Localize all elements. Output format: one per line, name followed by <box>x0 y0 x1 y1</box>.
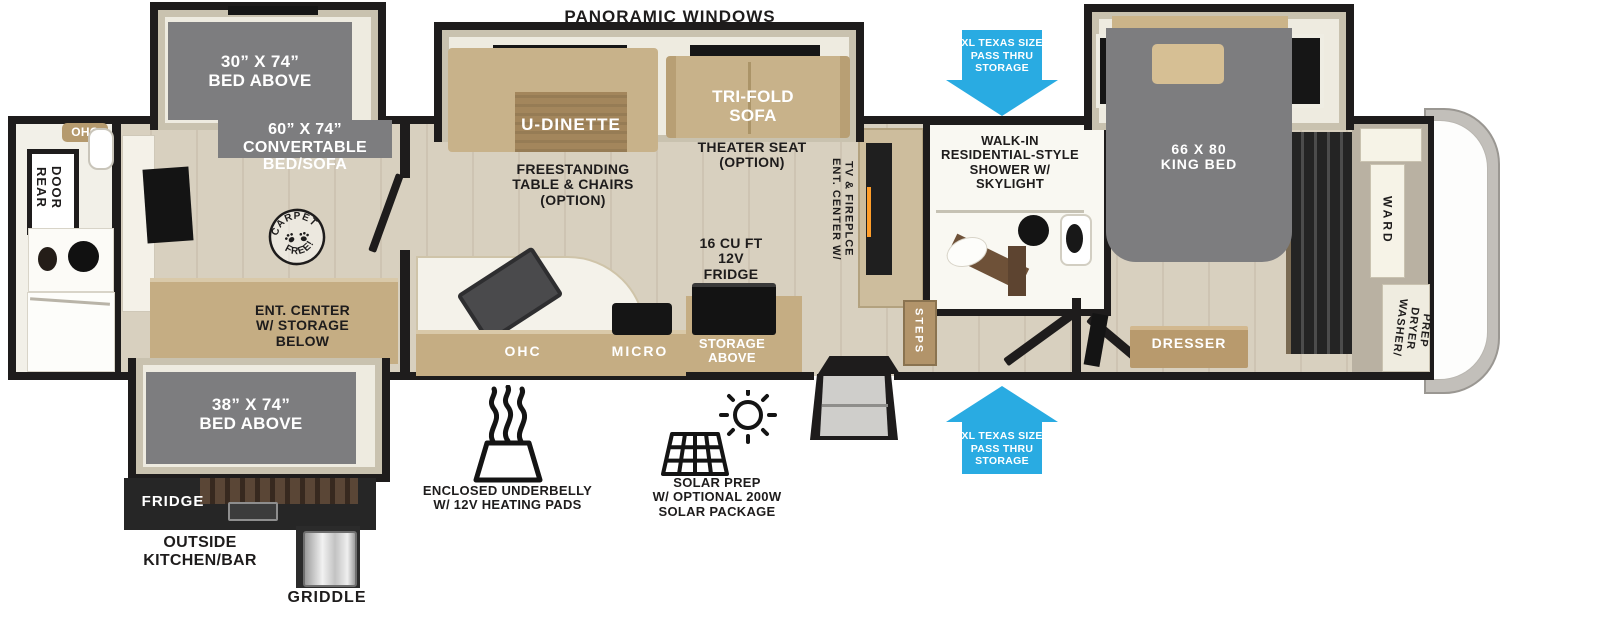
bedroom-closet <box>1286 132 1358 354</box>
solar-prep-icon <box>655 390 781 478</box>
fridge-12v <box>692 283 776 335</box>
entry-threshold <box>818 356 900 374</box>
arrow-up-head <box>946 386 1058 422</box>
shower-label: WALK-IN RESIDENTIAL-STYLE SHOWER W/ SKYL… <box>922 134 1098 191</box>
heating-pads-icon <box>452 385 564 485</box>
bunk-top-bed-label: 30” X 74” BED ABOVE <box>168 53 352 90</box>
bunk-divider-wall-lower <box>400 250 410 378</box>
rear-door-label: REAR DOOR <box>27 149 69 225</box>
king-bed-label: 66 X 80 KING BED <box>1106 142 1292 173</box>
kitchen-micro-label: MICRO <box>600 344 680 359</box>
freestanding-label: FREESTANDING TABLE & CHAIRS (OPTION) <box>498 162 648 208</box>
fridge-label: 16 CU FT 12V FRIDGE <box>686 236 776 282</box>
dresser-label: DRESSER <box>1130 336 1248 351</box>
u-dinette-label: U-DINETTE <box>486 116 656 135</box>
bedroom-wall-stub <box>1072 298 1081 378</box>
vanity-sink-right <box>68 241 99 272</box>
entry-step-line <box>822 404 888 407</box>
outside-kitchen-door <box>228 502 278 521</box>
underbelly-label: ENCLOSED UNDERBELLY W/ 12V HEATING PADS <box>405 484 610 513</box>
kitchen-ohc-label: OHC <box>488 344 558 359</box>
storage-above-label: STORAGE ABOVE <box>686 337 778 366</box>
king-window-right <box>1288 34 1324 108</box>
outside-fridge-label: FRIDGE <box>128 494 218 511</box>
ward-label: WARD <box>1370 164 1403 276</box>
pass-thru-top-label: XL TEXAS SIZE PASS THRU STORAGE <box>954 37 1050 75</box>
wall-bottom-3 <box>894 372 1434 380</box>
griddle-label: GRIDDLE <box>272 589 382 607</box>
convertible-label: 60” X 74” CONVERTABLE BED/SOFA <box>212 121 398 174</box>
solar-label: SOLAR PREP W/ OPTIONAL 200W SOLAR PACKAG… <box>628 476 806 519</box>
king-pillow <box>1152 44 1224 84</box>
bunk-bottom-bed-label: 38” X 74” BED ABOVE <box>146 396 356 433</box>
tri-fold-sofa-label: TRI-FOLD SOFA <box>678 88 828 125</box>
microwave <box>612 303 672 335</box>
theater-seat-label: THEATER SEAT (OPTION) <box>682 140 822 171</box>
bath-cabinet-post <box>1008 246 1026 296</box>
arrow-down-head <box>946 80 1058 116</box>
bath-sink-bowl <box>1018 215 1049 246</box>
ent-center-tv-label: ENT. CENTER W/ TV & FIREPLCE <box>824 138 860 280</box>
rv-floorplan: OHC REAR DOOR ENT. CENTER W/ STORAGE BEL… <box>0 0 1600 619</box>
panoramic-windows-label: PANORAMIC WINDOWS <box>520 8 820 27</box>
pass-thru-arrow-bottom: XL TEXAS SIZE PASS THRU STORAGE <box>946 386 1058 474</box>
outside-kitchen-slats <box>200 478 358 504</box>
fireplace-glow <box>867 187 871 237</box>
living-slide-window-right <box>690 45 820 56</box>
bunk-top-window <box>228 6 318 15</box>
griddle <box>303 531 357 587</box>
toilet <box>88 128 114 170</box>
wall-left <box>8 116 16 380</box>
bunk-divider-wall-upper <box>400 118 410 178</box>
outside-kitchen-label: OUTSIDE KITCHEN/BAR <box>110 534 290 569</box>
vanity-sink-left <box>38 247 57 271</box>
bunk-ent-center-label: ENT. CENTER W/ STORAGE BELOW <box>230 303 375 349</box>
cabinet-top-box <box>1360 128 1422 162</box>
bunk-tv <box>142 166 193 243</box>
pass-thru-bottom-label: XL TEXAS SIZE PASS THRU STORAGE <box>954 430 1050 468</box>
mid-bath-shower-glass <box>936 210 1084 213</box>
steps-label: STEPS <box>903 300 933 362</box>
bath-toilet-seat <box>1066 224 1083 253</box>
pass-thru-arrow-top: XL TEXAS SIZE PASS THRU STORAGE <box>946 30 1058 116</box>
